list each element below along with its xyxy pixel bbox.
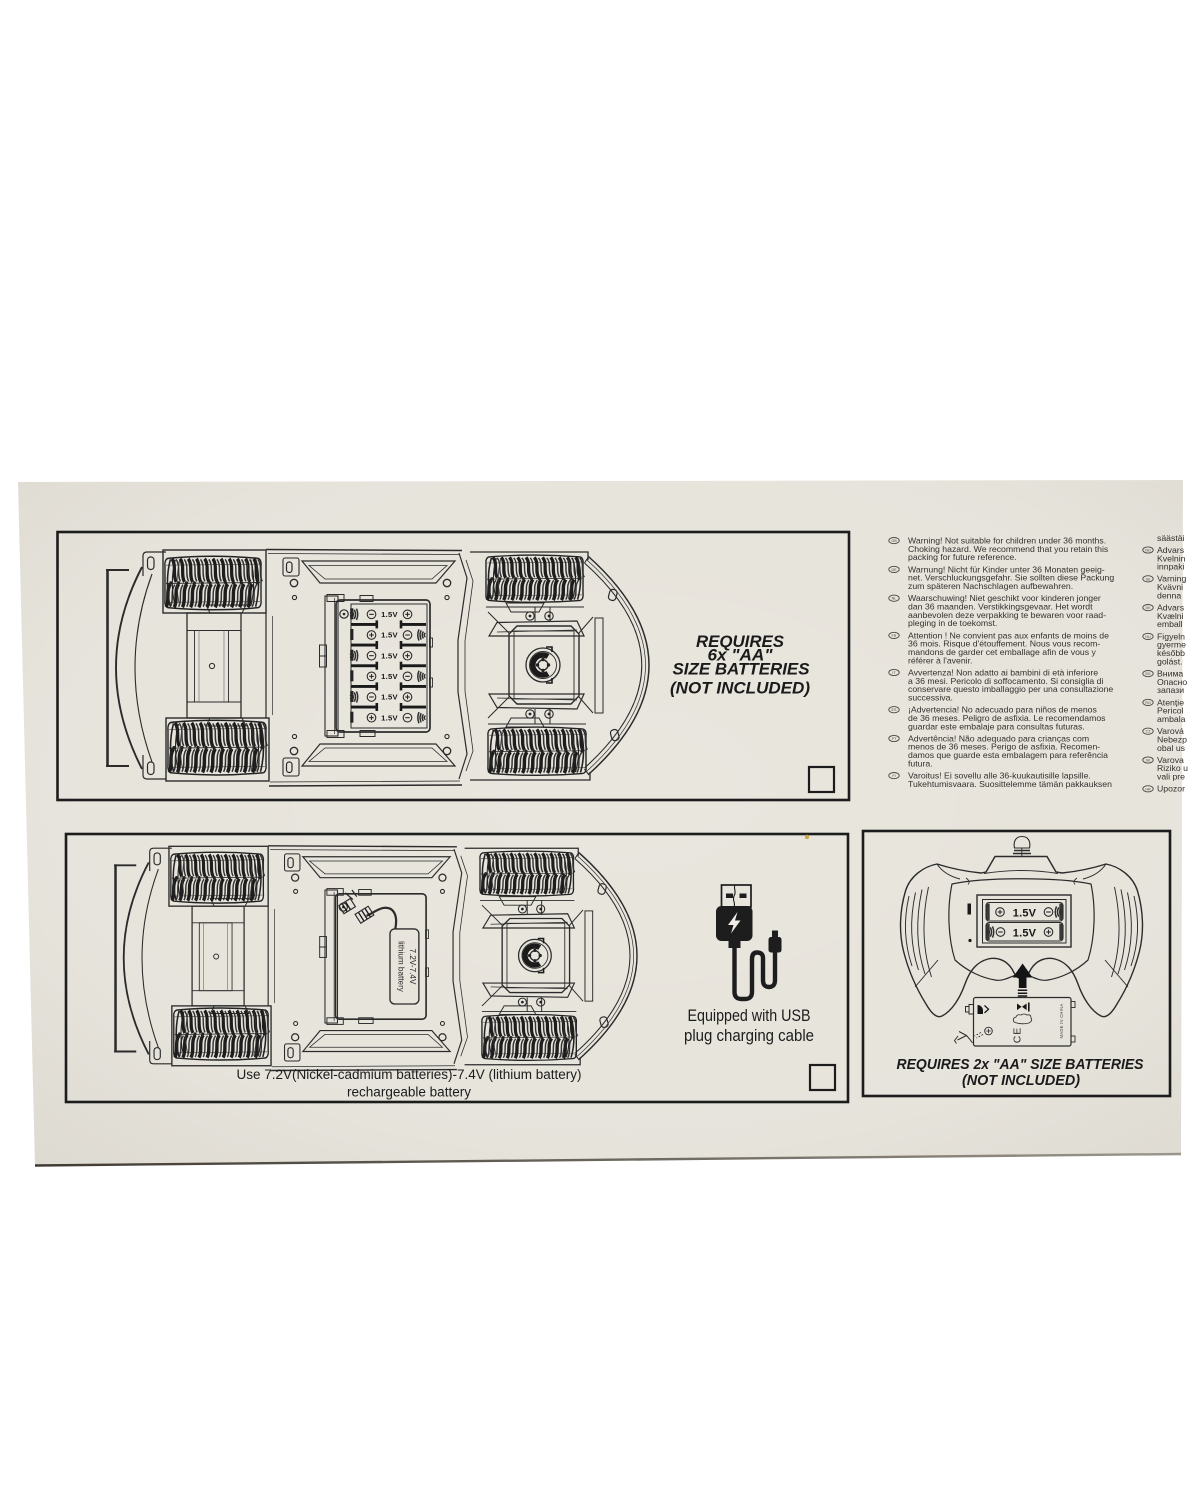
svg-text:pleging in de toekomst.: pleging in de toekomst. bbox=[908, 618, 997, 628]
svg-text:packing for future reference.: packing for future reference. bbox=[908, 552, 1017, 562]
svg-text:PT: PT bbox=[892, 737, 897, 741]
svg-text:1.5V: 1.5V bbox=[1013, 907, 1037, 919]
svg-text:référer à l'avenir.: référer à l'avenir. bbox=[908, 655, 972, 665]
svg-text:innpaki: innpaki bbox=[1157, 562, 1185, 572]
svg-text:REQUIRES 2x "AA" SIZE BATTERIE: REQUIRES 2x "AA" SIZE BATTERIES bbox=[897, 1056, 1144, 1073]
svg-text:DK: DK bbox=[1145, 606, 1151, 610]
svg-text:SE: SE bbox=[1146, 577, 1151, 581]
svg-text:successiva.: successiva. bbox=[908, 692, 953, 702]
svg-text:CZ: CZ bbox=[1146, 730, 1152, 734]
svg-text:(NOT INCLUDED): (NOT INCLUDED) bbox=[962, 1072, 1080, 1089]
svg-text:(NOT INCLUDED): (NOT INCLUDED) bbox=[670, 680, 810, 698]
svg-text:emball: emball bbox=[1157, 619, 1183, 629]
svg-text:запази: запази bbox=[1157, 685, 1184, 695]
svg-text:Equipped with USB: Equipped with USB bbox=[688, 1006, 811, 1025]
svg-text:Upozor: Upozor bbox=[1157, 784, 1185, 794]
svg-text:futura.: futura. bbox=[908, 758, 933, 768]
svg-text:RO: RO bbox=[1145, 701, 1151, 705]
svg-text:DE: DE bbox=[891, 568, 897, 572]
svg-text:SIZE BATTERIES: SIZE BATTERIES bbox=[673, 661, 810, 679]
svg-text:ES: ES bbox=[892, 708, 897, 712]
svg-text:FI: FI bbox=[892, 774, 895, 778]
svg-text:damos que guarde esta embalage: damos que guarde esta embalagem para ref… bbox=[908, 750, 1108, 760]
svg-text:NL: NL bbox=[892, 597, 897, 601]
svg-text:HU: HU bbox=[1145, 635, 1151, 639]
svg-text:SK: SK bbox=[1146, 759, 1151, 763]
svg-text:NO: NO bbox=[1145, 549, 1151, 553]
svg-text:ambala: ambala bbox=[1157, 714, 1186, 724]
svg-text:CE: CE bbox=[1012, 1027, 1024, 1044]
svg-text:guardar este embalaje para con: guardar este embalaje para consultas fut… bbox=[908, 721, 1085, 731]
svg-text:zum späteren Nachschlagen aufb: zum späteren Nachschlagen aufbewahren. bbox=[908, 581, 1073, 591]
svg-text:Use 7.2V(Nickel-cadmium batter: Use 7.2V(Nickel-cadmium batteries)-7.4V … bbox=[237, 1067, 582, 1083]
svg-text:GB: GB bbox=[891, 539, 897, 543]
svg-text:Tukehtumisvaara. Suosittelemme: Tukehtumisvaara. Suosittelemme tämän pak… bbox=[908, 779, 1112, 789]
svg-text:MADE IN CHINA: MADE IN CHINA bbox=[1059, 1004, 1064, 1039]
svg-text:denna: denna bbox=[1157, 590, 1181, 600]
svg-text:1.5V: 1.5V bbox=[1013, 927, 1037, 939]
svg-text:säästäi: säästäi bbox=[1157, 533, 1185, 543]
svg-text:obal us: obal us bbox=[1157, 743, 1186, 753]
svg-text:HR: HR bbox=[1145, 787, 1151, 791]
svg-text:plug charging cable: plug charging cable bbox=[684, 1026, 814, 1045]
svg-text:vali pre: vali pre bbox=[1157, 772, 1185, 782]
svg-text:rechargeable battery: rechargeable battery bbox=[347, 1085, 472, 1101]
svg-text:FR: FR bbox=[892, 634, 897, 638]
svg-text:BG: BG bbox=[1145, 672, 1150, 676]
svg-text:golást.: golást. bbox=[1157, 656, 1183, 666]
